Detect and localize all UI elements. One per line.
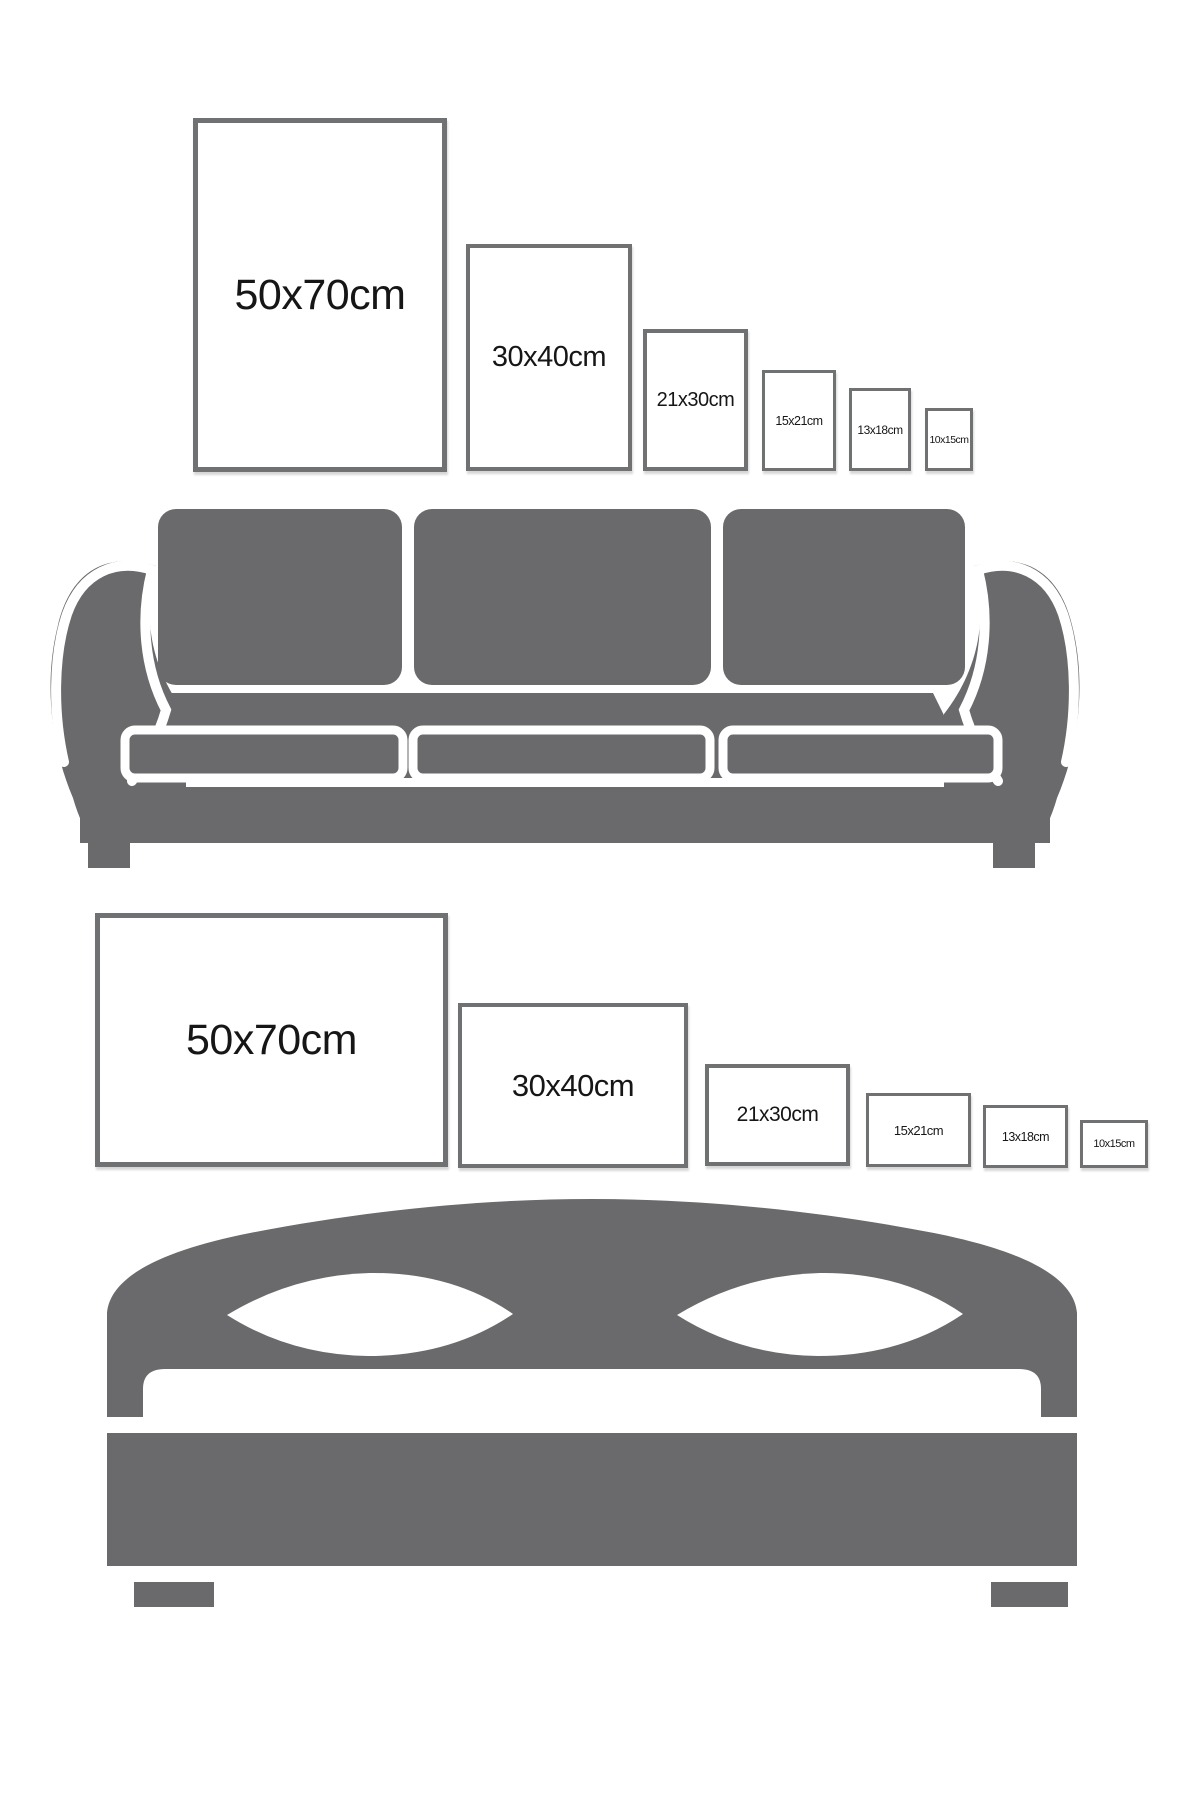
size-label: 21x30cm — [737, 1103, 819, 1127]
size-frame-portrait-15x21: 15x21cm — [762, 370, 836, 471]
size-label: 50x70cm — [235, 271, 406, 320]
size-label: 21x30cm — [657, 389, 735, 412]
size-label: 15x21cm — [894, 1123, 943, 1138]
size-frame-landscape-50x70: 50x70cm — [95, 913, 448, 1167]
size-label: 50x70cm — [186, 1016, 357, 1065]
bed-icon — [100, 1185, 1085, 1615]
size-frame-portrait-21x30: 21x30cm — [643, 329, 748, 471]
size-frame-landscape-15x21: 15x21cm — [866, 1093, 971, 1167]
size-frame-portrait-13x18: 13x18cm — [849, 388, 911, 471]
size-label: 13x18cm — [857, 423, 902, 437]
size-label: 30x40cm — [492, 341, 606, 374]
size-frame-landscape-13x18: 13x18cm — [983, 1105, 1068, 1168]
size-label: 13x18cm — [1002, 1130, 1049, 1144]
sofa-icon — [40, 462, 1090, 872]
size-frame-landscape-30x40: 30x40cm — [458, 1003, 688, 1168]
poster-size-guide: 50x70cm 30x40cm 21x30cm 15x21cm 13x18cm … — [0, 0, 1200, 1800]
size-frame-portrait-50x70: 50x70cm — [193, 118, 447, 472]
size-frame-landscape-21x30: 21x30cm — [705, 1064, 850, 1166]
size-label: 10x15cm — [1093, 1138, 1134, 1150]
size-label: 15x21cm — [775, 414, 822, 428]
size-frame-landscape-10x15: 10x15cm — [1080, 1120, 1148, 1168]
size-frame-portrait-30x40: 30x40cm — [466, 244, 632, 471]
size-label: 10x15cm — [929, 434, 968, 446]
size-label: 30x40cm — [512, 1068, 634, 1104]
